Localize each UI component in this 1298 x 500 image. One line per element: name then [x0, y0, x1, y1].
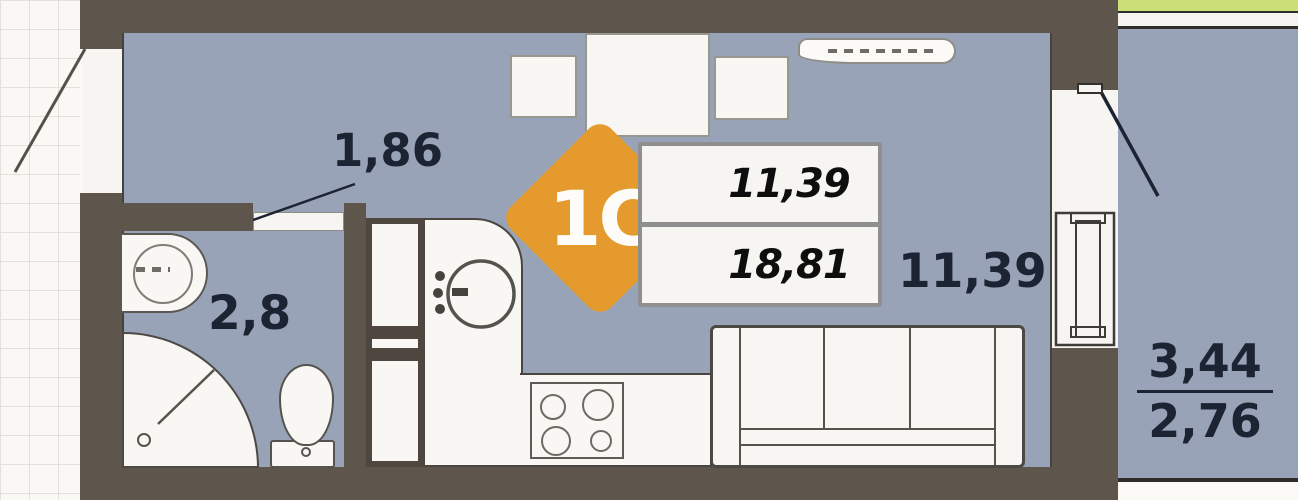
living-area-value: 11,39	[728, 161, 850, 207]
balcony-door-jamb	[1078, 84, 1102, 93]
balcony-area-reduced: 2,76	[1130, 398, 1280, 444]
faucet-handle	[452, 288, 468, 296]
faucet-dot	[433, 288, 443, 298]
balcony-area-full: 3,44	[1130, 338, 1280, 384]
window-frame-inner	[1076, 221, 1100, 337]
main-room-area-label: 11,39	[898, 248, 1047, 295]
faucet-dot	[435, 304, 445, 314]
fraction-line	[1137, 390, 1273, 393]
faucet-dot	[435, 271, 445, 281]
shower-drain-icon	[138, 434, 150, 446]
total-area-value: 18,81	[728, 242, 850, 288]
shower-door-line	[158, 370, 214, 424]
floorplan-canvas: 1C 11,39 18,81 1,86 2,8 11,39 3,44 2,76	[0, 0, 1298, 500]
total-area-row: 18,81	[642, 227, 878, 303]
unit-type-label: 1C	[549, 174, 652, 263]
bathroom-area-label: 2,8	[208, 290, 291, 337]
balcony-area-label: 3,44 2,76	[1130, 338, 1280, 444]
area-info-box: 11,39 18,81	[638, 142, 882, 307]
toilet-flush-dot	[302, 448, 310, 456]
balcony-door-swing-line	[1100, 90, 1158, 196]
hallway-leader-line	[253, 184, 355, 220]
window-frame-outer	[1056, 213, 1114, 345]
living-area-row: 11,39	[642, 146, 878, 227]
entry-door-swing-line	[15, 49, 85, 172]
hallway-area-label: 1,86	[332, 128, 443, 173]
